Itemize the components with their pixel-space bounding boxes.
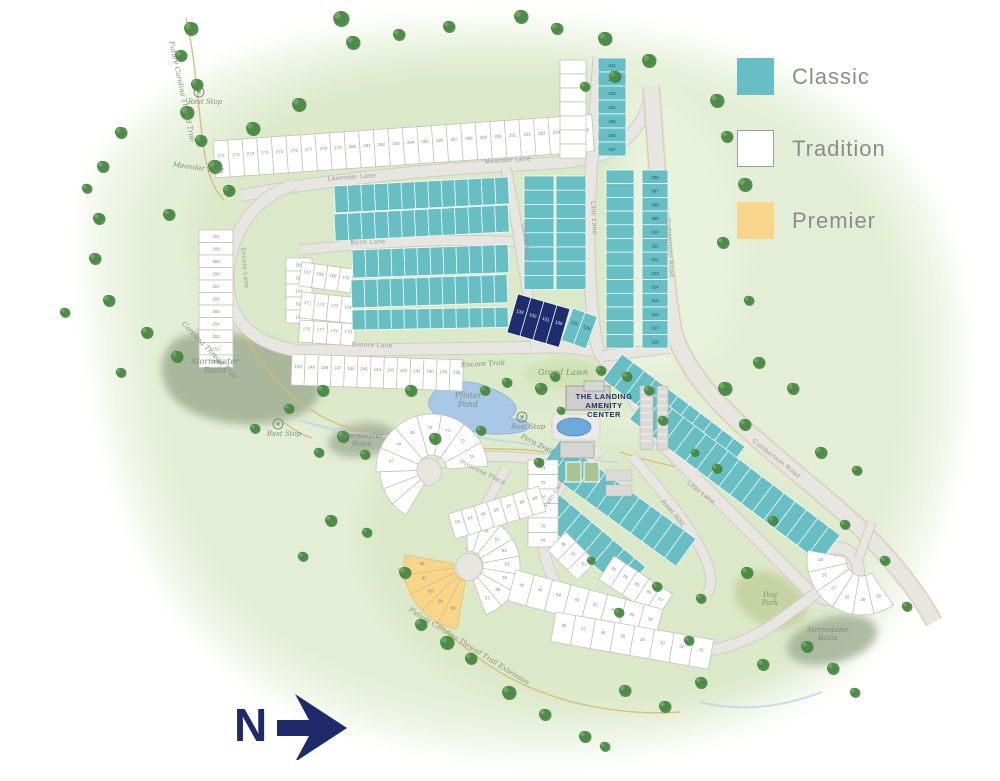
lot[interactable] — [347, 213, 362, 241]
lot-273[interactable] — [242, 138, 259, 176]
lot[interactable] — [481, 275, 495, 303]
lot-number: 139 — [440, 369, 448, 374]
rest-stop-star-icon: ✳ — [519, 414, 525, 422]
lot-number: 274 — [261, 150, 269, 156]
lot[interactable] — [428, 208, 443, 236]
lot-number: 294 — [552, 129, 560, 135]
lot-number: 27 — [831, 586, 836, 591]
lot[interactable] — [469, 308, 482, 328]
lot-number: 307 — [651, 189, 659, 194]
lot-number: 143 — [387, 367, 395, 372]
north-label: N — [234, 698, 269, 752]
lot-288[interactable] — [461, 123, 478, 161]
lot-number: 25 — [818, 557, 823, 562]
lot[interactable] — [378, 309, 391, 329]
lot-number: 47 — [389, 458, 394, 463]
lot[interactable] — [454, 207, 469, 235]
lot[interactable] — [494, 275, 508, 303]
lot-number: 142 — [400, 368, 408, 373]
lot-number: 72 — [460, 438, 465, 443]
place-label-pfister: Pfister — [454, 391, 483, 400]
lot-number: 316 — [651, 312, 659, 317]
lot-148[interactable] — [317, 355, 331, 386]
lot-number: 314 — [651, 285, 659, 290]
place-label-grand-lawn: Grand Lawn — [538, 368, 588, 377]
lot[interactable] — [606, 197, 634, 211]
lot-number: 57 — [485, 596, 490, 601]
lot[interactable] — [606, 266, 634, 280]
rest-stop-label-1: Rest Stop — [266, 430, 302, 438]
lot[interactable] — [556, 275, 586, 289]
lot-277[interactable] — [300, 134, 317, 172]
lot[interactable] — [606, 170, 634, 184]
lot-number: 59 — [438, 599, 443, 604]
lot-293[interactable] — [533, 118, 550, 156]
lot-number: 277 — [305, 147, 313, 153]
lot[interactable] — [606, 211, 634, 225]
tradition-swatch — [737, 130, 774, 167]
lot-number: 176 — [303, 326, 311, 332]
lot-282[interactable] — [373, 129, 390, 167]
lot-281[interactable] — [359, 130, 376, 168]
lot-number: 55 — [502, 575, 507, 580]
lot-number: 141 — [413, 368, 421, 373]
lot-number: 61 — [422, 575, 427, 580]
legend: Classic Tradition Premier — [737, 58, 886, 239]
lot-number: 290 — [494, 133, 502, 139]
lot-286[interactable] — [431, 125, 448, 163]
amenity-label-line-2: CENTER — [587, 410, 621, 419]
lot[interactable] — [391, 309, 404, 329]
lot-274[interactable] — [257, 137, 274, 175]
lot[interactable] — [560, 102, 586, 116]
lot[interactable] — [482, 308, 495, 328]
lot-number: 282 — [378, 142, 386, 148]
lot[interactable] — [524, 261, 554, 275]
lot-number: 58 — [451, 605, 456, 610]
lot-number: 155 — [212, 309, 220, 314]
lot-number: 140 — [426, 369, 434, 374]
lot-number: 273 — [247, 151, 255, 157]
lot[interactable] — [417, 247, 431, 275]
lot[interactable] — [388, 210, 403, 238]
lot-number: 29 — [860, 597, 865, 602]
lot[interactable] — [377, 279, 391, 307]
legend-label-classic: Classic — [792, 64, 870, 90]
lot[interactable] — [441, 208, 456, 236]
lot[interactable] — [556, 247, 586, 261]
lot-number: 345 — [608, 119, 616, 124]
lot[interactable] — [560, 144, 586, 158]
lot[interactable] — [468, 275, 482, 303]
lot-number: 70 — [427, 425, 432, 430]
lot-number: 73 — [469, 454, 474, 459]
lot[interactable] — [468, 206, 483, 234]
lot[interactable] — [524, 190, 554, 204]
lot[interactable] — [481, 178, 496, 206]
place-label-pond: Pond — [457, 400, 478, 409]
lot[interactable] — [334, 185, 349, 213]
lot[interactable] — [429, 277, 443, 305]
lot-146[interactable] — [344, 356, 358, 387]
lot-178[interactable] — [326, 322, 342, 345]
lot[interactable] — [347, 185, 362, 213]
lot-number: 167 — [303, 269, 312, 275]
lot-number: 347 — [608, 147, 616, 152]
lot-number: 346 — [608, 133, 616, 138]
lot[interactable] — [495, 245, 509, 273]
lot-number: 313 — [651, 271, 659, 276]
lot-number: 293 — [538, 130, 546, 136]
lot[interactable] — [416, 277, 430, 305]
lot-272[interactable] — [228, 139, 245, 177]
lot[interactable] — [482, 245, 496, 273]
lot-number: 159 — [212, 259, 220, 264]
lot-142[interactable] — [396, 358, 410, 389]
lot-number: 161 — [212, 234, 220, 239]
lot-number: 174 — [344, 304, 352, 310]
lot[interactable] — [442, 276, 456, 304]
lot[interactable] — [556, 261, 586, 275]
lot-number: 150 — [294, 364, 302, 369]
lot[interactable] — [556, 233, 586, 247]
lot-number: 54 — [504, 561, 509, 566]
lot-number: 287 — [451, 137, 459, 143]
lot[interactable] — [404, 248, 418, 276]
lot-number: 310 — [651, 230, 659, 235]
lot[interactable] — [378, 249, 392, 277]
lot-number: 148 — [321, 365, 329, 370]
lot[interactable] — [401, 182, 416, 210]
lot-number: 62 — [420, 561, 425, 566]
lot[interactable] — [495, 177, 510, 205]
lot-number: 283 — [392, 141, 400, 147]
lot-150[interactable] — [291, 354, 305, 385]
lot-number: 75 — [541, 480, 546, 485]
lot-number: 168 — [316, 271, 325, 277]
lot-number: 179 — [344, 329, 352, 335]
lot[interactable] — [560, 130, 586, 144]
lot-number: 289 — [480, 134, 488, 140]
lot-number: 71 — [445, 428, 450, 433]
legend-item-classic: Classic — [737, 58, 886, 95]
lot[interactable] — [556, 190, 586, 204]
lot[interactable] — [365, 310, 378, 330]
lot[interactable] — [556, 204, 586, 218]
lot[interactable] — [456, 246, 470, 274]
lot[interactable] — [351, 280, 365, 308]
lot[interactable] — [443, 308, 456, 328]
place-label-stormwater: Stormwater — [341, 432, 384, 440]
lot[interactable] — [454, 179, 469, 207]
lot-145[interactable] — [357, 356, 371, 387]
lot-number: 144 — [374, 367, 382, 372]
lot[interactable] — [606, 307, 634, 321]
lot-number: 147 — [334, 365, 342, 370]
lot[interactable] — [390, 278, 404, 306]
lot[interactable] — [414, 181, 429, 209]
lot[interactable] — [428, 180, 443, 208]
lot-number: 145 — [360, 366, 368, 371]
lot-number: 291 — [509, 132, 517, 138]
place-label-stormwater: Stormwater — [807, 626, 850, 634]
lot-number: 309 — [651, 216, 659, 221]
lot-number: 156 — [212, 297, 220, 302]
lot[interactable] — [606, 280, 634, 294]
lot-number: 49 — [410, 430, 415, 435]
lot[interactable] — [401, 210, 416, 238]
legend-item-premier: Premier — [737, 202, 886, 239]
lot-number: 308 — [651, 202, 659, 207]
lot[interactable] — [374, 183, 389, 211]
lot-278[interactable] — [315, 133, 332, 171]
lot[interactable] — [606, 239, 634, 253]
place-label-basin: Basin — [817, 634, 838, 642]
lot[interactable] — [365, 249, 379, 277]
lot-number: 173 — [331, 303, 339, 309]
lot-number: 53 — [502, 548, 507, 553]
amenity-label-line-1: AMENITY — [585, 401, 622, 410]
lot-number: 343 — [608, 91, 616, 96]
lot[interactable] — [455, 276, 469, 304]
place-label-park: Park — [761, 599, 778, 607]
lot[interactable] — [556, 219, 586, 233]
lot-number: 79 — [541, 538, 546, 543]
lot-number: 317 — [651, 326, 659, 331]
legend-label-premier: Premier — [792, 208, 876, 234]
lot[interactable] — [524, 204, 554, 218]
lot-number: 280 — [349, 144, 357, 150]
lot-287[interactable] — [446, 124, 463, 162]
lot-number: 275 — [276, 149, 284, 155]
lot-number: 311 — [652, 243, 660, 248]
lot[interactable] — [606, 321, 634, 335]
lot-number: 28 — [845, 594, 850, 599]
lot[interactable] — [441, 180, 456, 208]
lot-number: 315 — [651, 298, 659, 303]
lot-176[interactable] — [298, 320, 314, 343]
lot-number: 344 — [608, 105, 616, 110]
lot-number: 292 — [523, 131, 531, 137]
lot[interactable] — [414, 209, 429, 237]
lot-147[interactable] — [330, 355, 344, 386]
lot[interactable] — [361, 184, 376, 212]
road-label-encore-lane: Encore Lane — [351, 341, 392, 349]
lot[interactable] — [469, 245, 483, 273]
lot[interactable] — [352, 250, 366, 278]
rest-stop-label-2: Rest Stop — [510, 423, 546, 431]
lot[interactable] — [456, 308, 469, 328]
rest-stop-star-icon: ✳ — [196, 89, 202, 97]
lot-number: 284 — [407, 140, 415, 146]
lot-number: 312 — [651, 257, 659, 262]
lot[interactable] — [404, 309, 417, 329]
north-arrow: N — [234, 690, 353, 760]
lot[interactable] — [556, 176, 586, 190]
lot-number: 170 — [342, 275, 351, 281]
lot-number: 318 — [651, 339, 659, 344]
lot[interactable] — [443, 246, 457, 274]
lot-number: 26 — [822, 573, 827, 578]
lot[interactable] — [352, 310, 365, 330]
lot-290[interactable] — [490, 121, 507, 159]
lot-number: 178 — [330, 328, 338, 334]
lot-number: 278 — [319, 146, 327, 152]
lot[interactable] — [524, 176, 554, 190]
lot-285[interactable] — [417, 126, 434, 164]
classic-swatch — [737, 58, 774, 95]
lot-number: 285 — [421, 139, 429, 145]
lot[interactable] — [374, 211, 389, 239]
lot[interactable] — [560, 116, 586, 130]
lot-number: 56 — [495, 587, 500, 592]
premier-swatch — [737, 202, 774, 239]
lot[interactable] — [606, 225, 634, 239]
lot-number: 149 — [308, 365, 316, 370]
lot-276[interactable] — [286, 135, 303, 173]
lot[interactable] — [391, 248, 405, 276]
road-label-birch-lane: Birch Lane — [350, 238, 385, 246]
lot-number: 157 — [212, 284, 220, 289]
lot[interactable] — [495, 307, 508, 327]
rest-stop-star-icon: ✳ — [275, 421, 281, 429]
lot-number: 272 — [232, 152, 240, 158]
lot[interactable] — [468, 178, 483, 206]
lot[interactable] — [606, 334, 634, 348]
lot-149[interactable] — [304, 354, 318, 385]
lot-141[interactable] — [410, 358, 424, 389]
lot[interactable] — [417, 309, 430, 329]
lot-number: 281 — [363, 143, 371, 149]
lot-number: 279 — [334, 145, 342, 151]
lot[interactable] — [524, 275, 554, 289]
lot-number: 30 — [876, 594, 881, 599]
lot-number: 52 — [495, 536, 500, 541]
lot[interactable] — [388, 182, 403, 210]
lot-143[interactable] — [383, 357, 397, 388]
lot[interactable] — [481, 206, 496, 234]
lot-number: 48 — [396, 442, 401, 447]
place-label-stormwater: Stormwater — [191, 357, 240, 366]
lot-289[interactable] — [475, 122, 492, 160]
lot-number: 286 — [436, 138, 444, 144]
lot-number: 169 — [329, 273, 338, 279]
lot-number: 341 — [608, 63, 616, 68]
lot-280[interactable] — [344, 131, 361, 169]
lot[interactable] — [430, 247, 444, 275]
lot-number: 153 — [212, 334, 220, 339]
lot-number: 171 — [304, 300, 312, 306]
lot-284[interactable] — [402, 127, 419, 165]
north-arrow-icon — [269, 690, 353, 760]
lot-number: 158 — [212, 272, 220, 277]
lot-283[interactable] — [388, 128, 405, 166]
lot[interactable] — [430, 308, 443, 328]
lot-number: 306 — [651, 175, 659, 180]
legend-item-tradition: Tradition — [737, 130, 886, 167]
amenity-label-line-0: THE LANDING — [576, 392, 633, 401]
lot[interactable] — [606, 252, 634, 266]
lot[interactable] — [361, 212, 376, 240]
place-label-dog: Dog — [762, 591, 778, 599]
lot-number: 276 — [290, 148, 298, 154]
place-label-basin: Basin — [351, 440, 372, 448]
lot-139[interactable] — [436, 359, 450, 390]
lot-number: 177 — [317, 327, 325, 333]
lot-number: 160 — [212, 247, 220, 252]
lot[interactable] — [495, 205, 510, 233]
lot[interactable] — [560, 60, 586, 74]
site-plan-screenshot: { "legend": { "items": [ {"name":"classi… — [0, 0, 1000, 781]
legend-label-tradition: Tradition — [792, 136, 886, 162]
lot-140[interactable] — [423, 359, 437, 390]
lot-279[interactable] — [330, 132, 347, 170]
lot[interactable] — [403, 278, 417, 306]
lot-number: 78 — [541, 523, 546, 528]
lot-number: 271 — [218, 153, 226, 159]
rest-stop-label-0: Rest Stop — [187, 98, 223, 106]
place-label-basin: Basin — [203, 366, 226, 375]
lot-177[interactable] — [312, 321, 328, 344]
lot-291[interactable] — [504, 120, 521, 158]
lot-292[interactable] — [519, 119, 536, 157]
lot[interactable] — [334, 213, 349, 241]
lot[interactable] — [606, 184, 634, 198]
lot-number: 288 — [465, 136, 473, 142]
lot-number: 138 — [453, 370, 461, 375]
lot[interactable] — [606, 293, 634, 307]
lot-275[interactable] — [271, 136, 288, 174]
lot-number: 146 — [347, 366, 355, 371]
lot-144[interactable] — [370, 357, 384, 388]
lot[interactable] — [364, 279, 378, 307]
lot-number: 60 — [428, 588, 433, 593]
lot-number: 172 — [317, 301, 325, 307]
lot-number: 154 — [212, 322, 220, 327]
